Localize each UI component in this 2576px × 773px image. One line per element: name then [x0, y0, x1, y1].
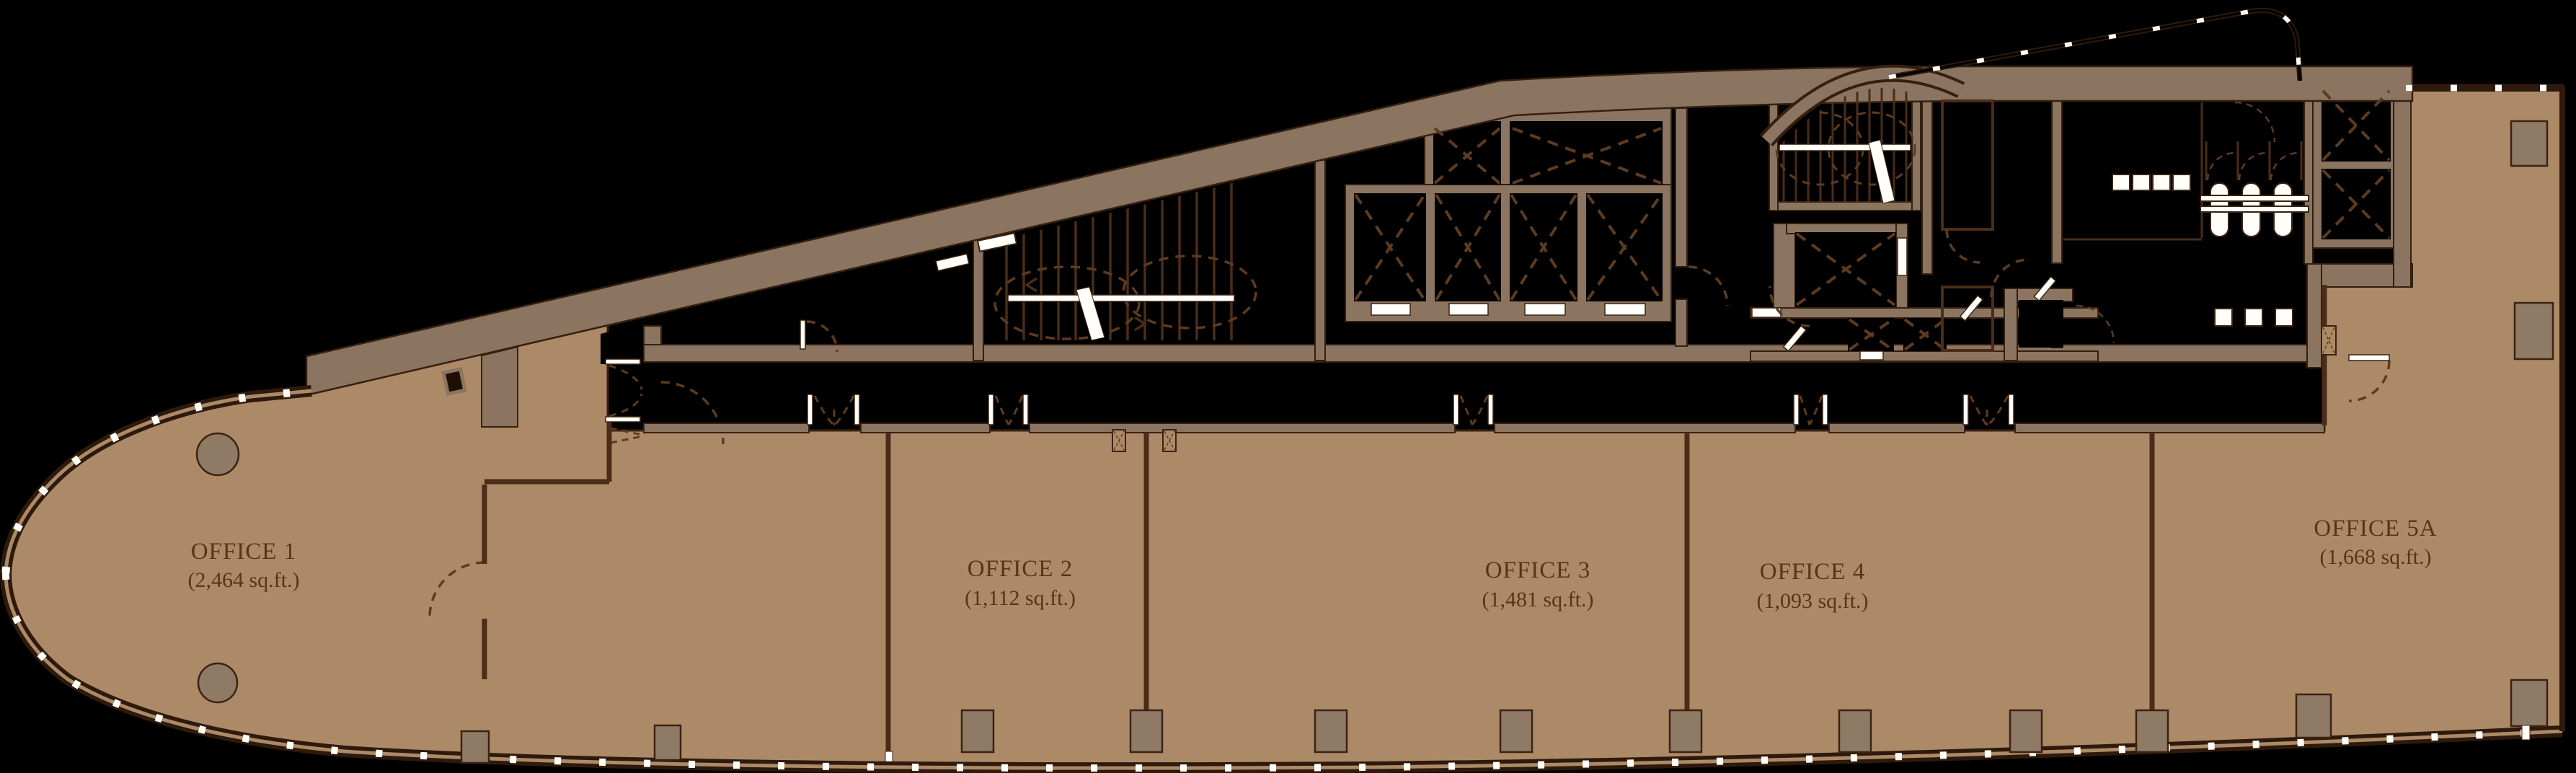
core-l-wall-side	[2004, 288, 2017, 361]
column	[1130, 710, 1162, 752]
privacy-screen	[2200, 206, 2309, 212]
column	[2296, 694, 2331, 738]
sink	[2245, 309, 2262, 326]
floor-plan-canvas: OFFICE 1 (2,464 sq.ft.) OFFICE 2 (1,112 …	[0, 0, 2576, 773]
core-wall-a	[1676, 108, 1687, 267]
stair1-west-wall	[973, 240, 983, 361]
column	[1500, 710, 1532, 752]
office-5a-name: OFFICE 5A	[2314, 516, 2437, 542]
sink	[2133, 175, 2150, 190]
core-wall-b	[1676, 299, 1687, 346]
office-2-area: (1,112 sq.ft.)	[965, 586, 1076, 610]
core-step-wall-vert	[2307, 264, 2322, 368]
column	[1315, 710, 1347, 752]
round-column	[198, 663, 237, 702]
office-2-name: OFFICE 2	[968, 556, 1073, 582]
facade-vent-box	[443, 369, 465, 394]
office-1-name: OFFICE 1	[191, 539, 296, 565]
office5a-column	[2515, 303, 2553, 359]
column	[2136, 710, 2168, 752]
round-column	[197, 433, 239, 475]
sink	[2173, 175, 2190, 190]
core-door-strip	[1898, 238, 1907, 275]
column	[461, 731, 489, 763]
office-3-area: (1,481 sq.ft.)	[1482, 588, 1594, 611]
privacy-screen	[2200, 195, 2309, 201]
sink	[2275, 309, 2293, 326]
facade-pier	[482, 347, 518, 427]
row-door	[1860, 351, 1883, 360]
core-wall-d	[2052, 101, 2062, 263]
column	[655, 725, 681, 760]
shaft3-west-wall	[1774, 224, 1795, 310]
stair1-landing	[1008, 295, 1234, 301]
floor-plan-drawing: OFFICE 1 (2,464 sq.ft.) OFFICE 2 (1,112 …	[0, 0, 2576, 773]
stair2-east-wall	[1912, 91, 1921, 211]
stair2-landing	[1779, 144, 1911, 151]
office-1-area: (2,464 sq.ft.)	[188, 568, 300, 592]
sink	[2112, 175, 2130, 190]
stair2-bottom-wall	[1769, 202, 1921, 211]
office5a-column	[2511, 121, 2547, 166]
sink	[2153, 175, 2170, 190]
corner-mullion	[2522, 725, 2530, 740]
column	[962, 710, 993, 752]
room-row-bottom-wall	[1750, 351, 2098, 361]
office-3-name: OFFICE 3	[1485, 557, 1590, 583]
core-east-wall	[2394, 101, 2411, 287]
restroom-east-wall	[2304, 101, 2313, 264]
column	[1839, 710, 1871, 752]
column	[2010, 710, 2042, 752]
stair1-east-wall	[1315, 160, 1325, 361]
sink	[2215, 309, 2232, 326]
core-wall-c	[1922, 94, 1932, 274]
shaft3-top-wall	[1787, 224, 1908, 234]
office-4-area: (1,093 sq.ft.)	[1757, 589, 1869, 613]
column	[1670, 710, 1701, 752]
office-4-name: OFFICE 4	[1760, 559, 1865, 585]
office-5a-area: (1,668 sq.ft.)	[2320, 545, 2432, 569]
office5a-door-leaf	[2349, 355, 2389, 361]
corner-column	[2511, 680, 2547, 726]
